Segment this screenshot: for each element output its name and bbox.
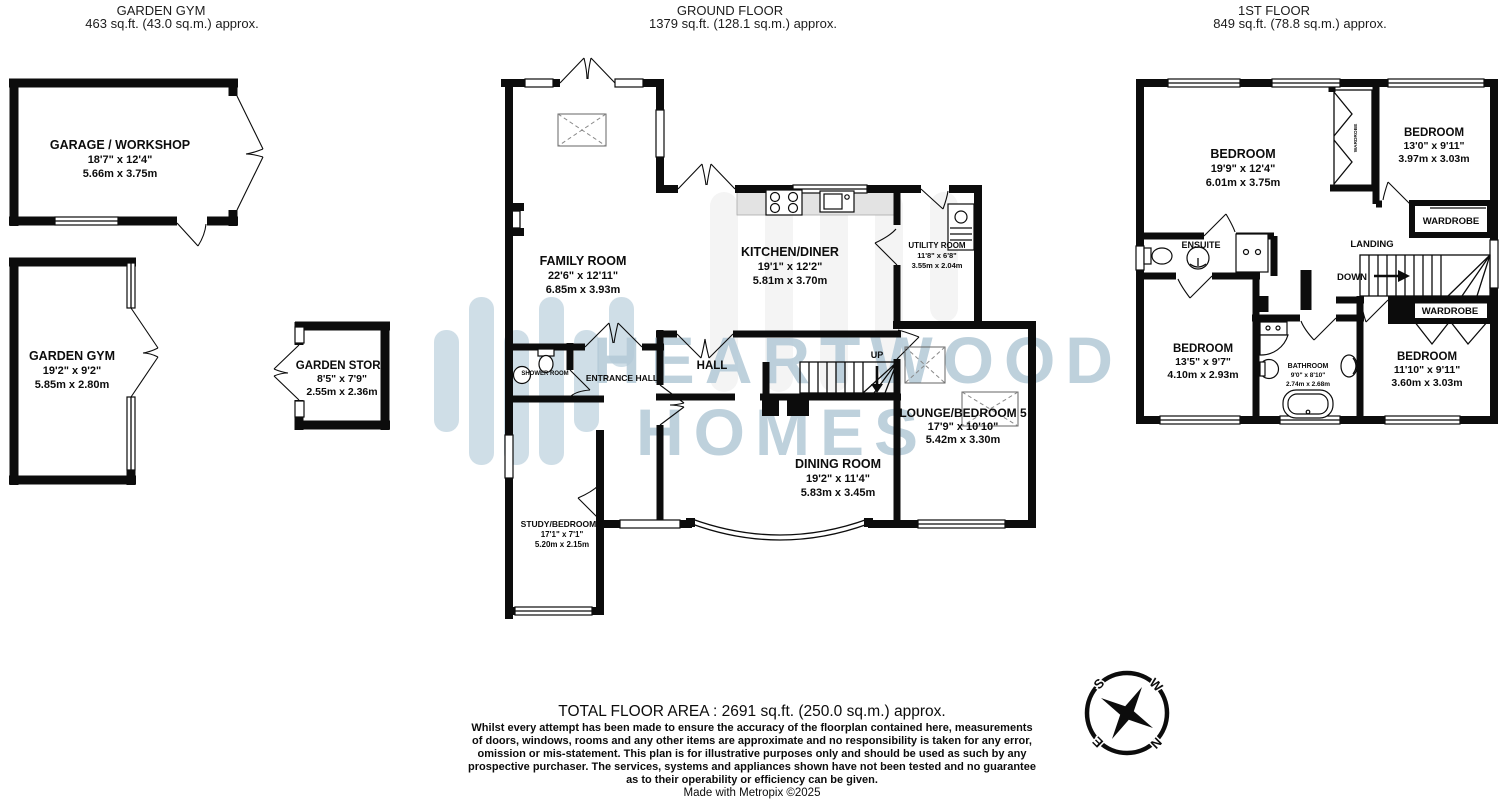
- bedroom1-imperial: 19'9" x 12'4": [1211, 163, 1276, 175]
- kitchen-metric: 5.81m x 3.70m: [753, 275, 828, 287]
- garden-store-imperial: 8'5" x 7'9": [317, 373, 367, 385]
- garage-name: GARAGE / WORKSHOP: [50, 138, 190, 152]
- garage-double-door: [237, 96, 263, 210]
- bedroom1-name: BEDROOM: [1210, 147, 1275, 161]
- bedroom3-name: BEDROOM: [1173, 343, 1233, 355]
- disclaimer-line-2: of doors, windows, rooms and any other i…: [472, 735, 1032, 747]
- garden-store-window-bottom: [295, 401, 304, 417]
- bathroom-sink-icon: [1341, 355, 1357, 377]
- fireplace: [509, 203, 524, 211]
- ensuite-toilet-icon: [1144, 248, 1172, 264]
- section-headers: GARDEN GYM 463 sq.ft. (43.0 sq.m.) appro…: [85, 3, 1386, 31]
- down-label: DOWN: [1337, 272, 1367, 283]
- utility-imperial: 11'8" x 6'8": [917, 251, 957, 260]
- bath-icon: [1283, 390, 1333, 418]
- disclaimer-line-5: as to their operability or efficiency ca…: [626, 774, 878, 786]
- study-imperial: 17'1" x 7'1": [541, 530, 584, 539]
- disclaimer-line-1: Whilst every attempt has been made to en…: [471, 722, 1032, 734]
- bedroom2-name: BEDROOM: [1404, 127, 1464, 139]
- ensuite-label: ENSUITE: [1181, 240, 1220, 250]
- garage-side-door: [177, 223, 206, 246]
- credit: Made with Metropix ©2025: [684, 787, 821, 799]
- kitchen-imperial: 19'1" x 12'2": [758, 261, 823, 273]
- sink-icon: [820, 191, 854, 212]
- dining-name: DINING ROOM: [795, 457, 881, 471]
- wardrobe-box-2: WARDROBE: [1412, 299, 1490, 344]
- entrance-hall-label: ENTRANCE HALL: [586, 373, 658, 383]
- bedroom2-imperial: 13'0" x 9'11": [1403, 140, 1464, 152]
- garden-store-metric: 2.55m x 2.36m: [306, 386, 377, 398]
- garden-store-window-top: [295, 327, 304, 343]
- compass-icon: S W N E: [1087, 673, 1167, 753]
- utility-metric: 3.55m x 2.04m: [912, 261, 963, 270]
- study-metric: 5.20m x 2.15m: [535, 540, 589, 549]
- bedroom4-name: BEDROOM: [1397, 351, 1457, 363]
- lounge-name: LOUNGE/BEDROOM 5: [899, 406, 1027, 420]
- bedroom2-metric: 3.97m x 3.03m: [1398, 153, 1469, 165]
- bathroom-shower-icon: [1260, 322, 1288, 355]
- footer: TOTAL FLOOR AREA : 2691 sq.ft. (250.0 sq…: [468, 703, 1036, 799]
- dining-imperial: 19'2" x 11'4": [806, 473, 870, 485]
- lounge-metric: 5.42m x 3.30m: [926, 434, 1001, 446]
- garage-workshop: GARAGE / WORKSHOP 18'7" x 12'4" 5.66m x …: [9, 79, 263, 246]
- garden-gym-area: 463 sq.ft. (43.0 sq.m.) approx.: [85, 16, 258, 31]
- bathroom-toilet-icon: [1260, 360, 1279, 379]
- family-metric: 6.85m x 3.93m: [546, 284, 621, 296]
- garden-gym-double-door: [131, 308, 158, 397]
- skylight-family: [558, 114, 606, 146]
- garden-store-name: GARDEN STORE: [296, 360, 389, 372]
- disclaimer-line-3: omission or mis-statement. This plan is …: [478, 748, 1028, 760]
- wardrobe-strip: WARDROBE: [1334, 90, 1372, 186]
- garden-store-double-door: [274, 345, 299, 400]
- down-arrow: [1398, 270, 1410, 282]
- utility-name: UTILITY ROOM: [908, 241, 966, 250]
- first-floor-area: 849 sq.ft. (78.8 sq.m.) approx.: [1213, 16, 1386, 31]
- garden-gym-metric: 5.85m x 2.80m: [35, 379, 110, 391]
- landing-label: LANDING: [1350, 239, 1393, 250]
- compass-n: N: [1148, 735, 1165, 752]
- study-name: STUDY/BEDROOM 6: [521, 519, 604, 529]
- stairs-down: DOWN: [1337, 255, 1490, 296]
- bay-window: [692, 519, 868, 540]
- total-floor-area: TOTAL FLOOR AREA : 2691 sq.ft. (250.0 sq…: [558, 703, 945, 720]
- floorplan-page: HEARTWOOD HOMES GARDEN GYM 463 sq.ft. (4…: [0, 0, 1504, 800]
- family-imperial: 22'6" x 12'11": [548, 270, 618, 282]
- bedroom4-metric: 3.60m x 3.03m: [1391, 377, 1462, 389]
- family-name: FAMILY ROOM: [540, 254, 627, 268]
- compass-star: [1101, 687, 1153, 739]
- bedroom1-metric: 6.01m x 3.75m: [1206, 177, 1281, 189]
- garage-imperial: 18'7" x 12'4": [88, 154, 153, 166]
- dining-metric: 5.83m x 3.45m: [801, 487, 876, 499]
- first-floor-labels: BEDROOM 19'9" x 12'4" 6.01m x 3.75m BEDR…: [1167, 127, 1469, 389]
- floorplan-canvas: HEARTWOOD HOMES GARDEN GYM 463 sq.ft. (4…: [0, 0, 1504, 800]
- hall-label: HALL: [697, 360, 728, 372]
- bathroom-imperial: 9'0" x 8'10": [1291, 372, 1326, 379]
- wardrobe-strip-label: WARDROBE: [1353, 123, 1359, 152]
- bathroom-metric: 2.74m x 2.68m: [1286, 381, 1330, 388]
- garage-metric: 5.66m x 3.75m: [83, 168, 158, 180]
- lounge-imperial: 17'9" x 10'10": [928, 421, 999, 433]
- ground-floor-area: 1379 sq.ft. (128.1 sq.m.) approx.: [649, 16, 837, 31]
- disclaimer-line-4: prospective purchaser. The services, sys…: [468, 761, 1036, 773]
- hob-icon: [766, 190, 802, 215]
- bathroom-name: BATHROOM: [1288, 363, 1329, 370]
- kitchen-counter: [737, 192, 894, 215]
- wardrobe-box2-label: WARDROBE: [1422, 306, 1478, 317]
- shower-room-label: SHOWER ROOM: [521, 371, 568, 377]
- ensuite-sink-icon: [1187, 247, 1209, 269]
- ensuite-shower-icon: [1236, 234, 1268, 272]
- garden-gym-room: GARDEN GYM 19'2" x 9'2" 5.85m x 2.80m: [9, 258, 158, 485]
- garden-gym-imperial: 19'2" x 9'2": [43, 365, 101, 377]
- bedroom3-imperial: 13'5" x 9'7": [1175, 356, 1231, 368]
- wardrobe-box-1: WARDROBE: [1412, 203, 1490, 235]
- shower-room-toilet-icon: [538, 349, 554, 373]
- bedroom4-imperial: 11'10" x 9'11": [1394, 364, 1460, 376]
- first-floor-fixtures: [1144, 234, 1357, 418]
- garden-store: GARDEN STORE 8'5" x 7'9" 2.55m x 2.36m: [274, 322, 390, 430]
- kitchen-name: KITCHEN/DINER: [741, 245, 839, 259]
- garden-gym-name: GARDEN GYM: [29, 349, 115, 363]
- up-label: UP: [871, 350, 884, 360]
- wardrobe-box1-label: WARDROBE: [1423, 216, 1479, 227]
- bedroom3-metric: 4.10m x 2.93m: [1167, 369, 1238, 381]
